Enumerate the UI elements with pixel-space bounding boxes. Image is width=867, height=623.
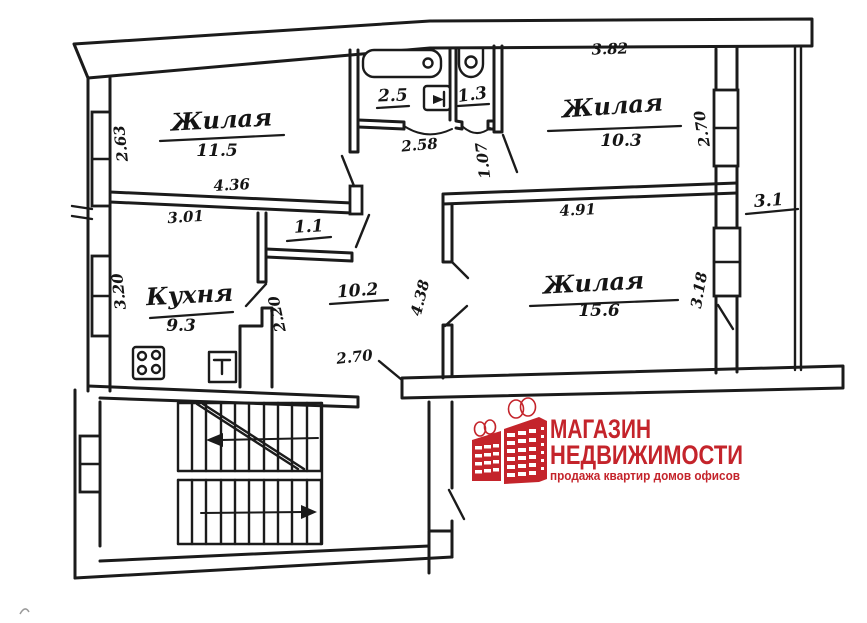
floor-plan: Жилая 11.5 Жилая 10.3 Жилая 15.6 Кухня 9… [0,0,867,623]
stove-icon [133,347,164,379]
door-leaf-balcony [718,305,733,329]
dim-room15-depth: 3.18 [687,270,711,310]
kitchen-sink-icon [209,352,236,382]
dim-room10-depth: 2.70 [690,109,714,149]
window [92,256,110,336]
dim-wc-width: 1.07 [472,141,494,180]
toilet-icon [459,48,483,77]
room-closet-area: 1.1 [293,216,324,238]
dim-kitchen-left: 3.20 [108,272,130,311]
door-leaf-room15 [445,262,468,326]
door-jamb [350,186,362,214]
window [92,112,110,206]
room-kitchen-area: 9.3 [166,316,196,336]
room-living1-area: 11.5 [196,141,237,161]
dim-room11-width: 4.36 [213,175,251,195]
window [80,436,100,492]
door-leaf-room11 [342,156,354,186]
door-leaf-entry [379,361,402,380]
stair-break-line [197,404,304,469]
door-leaf-closet [356,215,369,247]
door-leaf-room10 [503,135,517,172]
door-leaf-vestibule [449,490,464,519]
room-living2-label: Жилая [559,88,664,124]
logo: МАГАЗИН НЕДВИЖИМОСТИ продажа квартир дом… [472,398,743,484]
door-arc-wc [462,126,490,133]
stair-down-arrow [201,505,317,519]
room-bath-area: 2.5 [377,85,408,106]
room-living3-label: Жилая [540,265,645,299]
door-leaf-kitchen [246,284,266,306]
staircase [178,403,322,544]
dim-hall-width: 2.70 [334,346,374,368]
room-hallway-area: 10.2 [336,280,379,303]
dim-room10-width: 3.82 [591,39,628,58]
room-kitchen-label: Кухня [144,278,233,312]
dim-room15-width: 4.91 [559,200,596,220]
room-living1-label: Жилая [168,102,273,136]
floor-plan-page: Жилая 11.5 Жилая 10.3 Жилая 15.6 Кухня 9… [0,0,867,623]
logo-tagline: продажа квартир домов офисов [550,468,740,483]
bathtub-icon [363,50,441,77]
dimension-labels: 4.36 2.63 3.01 3.20 2.20 2.58 1.07 3.82 … [108,39,714,368]
sink-icon [424,86,450,110]
dim-kitchen-top: 3.01 [167,207,205,228]
room-living3-area: 15.6 [578,301,620,321]
window [714,228,740,296]
dim-hall-depth: 4.38 [407,277,433,317]
window [714,90,738,166]
dim-bath-width: 2.58 [400,134,440,155]
room-balcony-area: 3.1 [753,190,784,212]
dim-kitchen-right: 2.20 [264,294,290,335]
scan-artifact [20,609,29,614]
door-arc-bath [404,126,452,134]
room-living2-area: 10.3 [600,131,642,151]
logo-title-line2: НЕДВИЖИМОСТИ [550,440,743,470]
logo-building-icon [472,398,547,484]
dim-room11-depth: 2.63 [110,124,132,163]
